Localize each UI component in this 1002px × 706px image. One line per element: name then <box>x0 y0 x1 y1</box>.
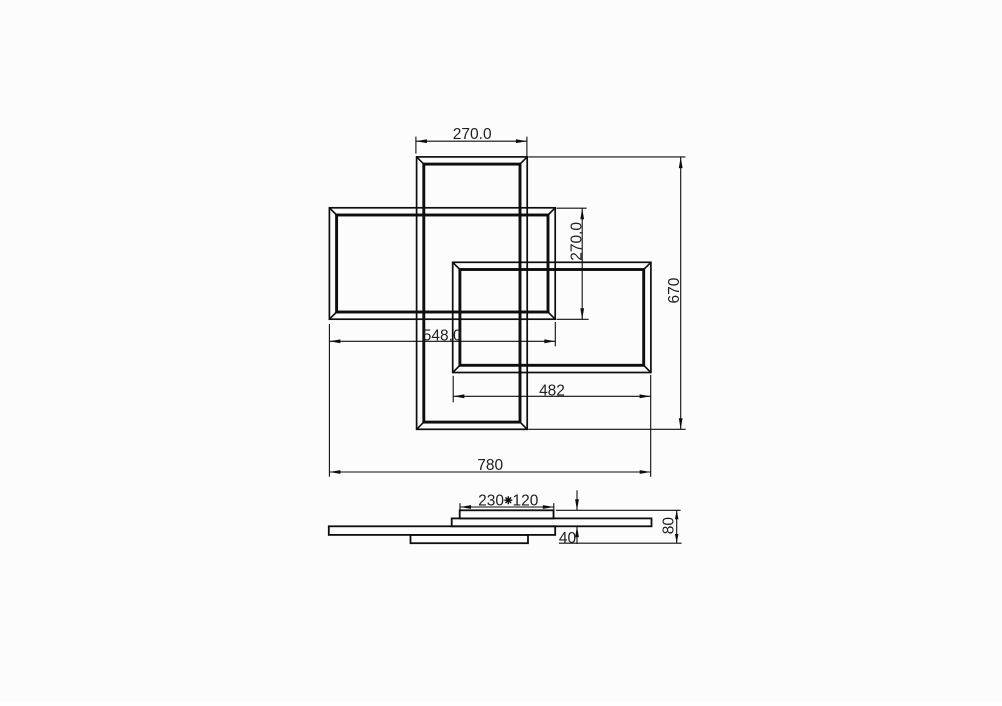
svg-text:548.0: 548.0 <box>423 327 462 344</box>
svg-text:670: 670 <box>666 277 683 303</box>
svg-text:482: 482 <box>539 383 565 400</box>
svg-text:270.0: 270.0 <box>568 222 585 261</box>
svg-text:780: 780 <box>477 457 503 474</box>
svg-text:80: 80 <box>661 517 678 535</box>
svg-text:120: 120 <box>513 492 539 509</box>
svg-text:230: 230 <box>478 492 504 509</box>
svg-text:270.0: 270.0 <box>453 126 492 143</box>
svg-text:40: 40 <box>559 530 577 547</box>
